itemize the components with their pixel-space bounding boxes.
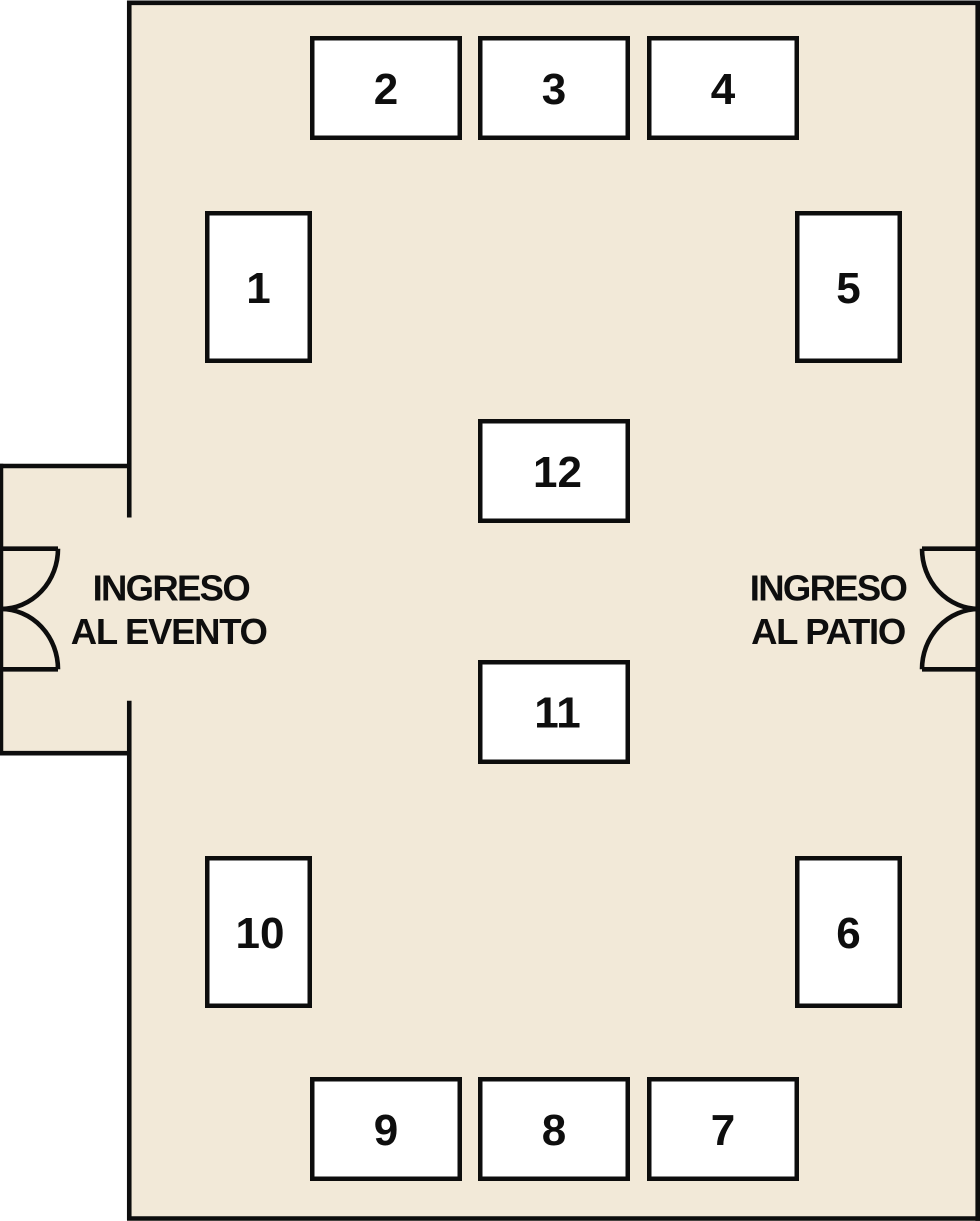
svg-text:12: 12 (533, 448, 582, 497)
svg-text:AL EVENTO: AL EVENTO (71, 611, 267, 652)
svg-text:AL PATIO: AL PATIO (751, 611, 905, 652)
svg-text:3: 3 (542, 65, 566, 114)
svg-text:8: 8 (542, 1106, 566, 1155)
svg-text:11: 11 (534, 689, 581, 738)
svg-text:5: 5 (836, 264, 860, 313)
svg-text:INGRESO: INGRESO (93, 568, 250, 609)
svg-text:1: 1 (246, 264, 270, 313)
svg-text:6: 6 (836, 909, 860, 958)
svg-text:7: 7 (711, 1106, 735, 1155)
svg-text:INGRESO: INGRESO (750, 568, 907, 609)
svg-text:4: 4 (711, 65, 736, 114)
svg-text:10: 10 (236, 909, 285, 958)
svg-text:9: 9 (374, 1106, 398, 1155)
svg-text:2: 2 (374, 65, 398, 114)
